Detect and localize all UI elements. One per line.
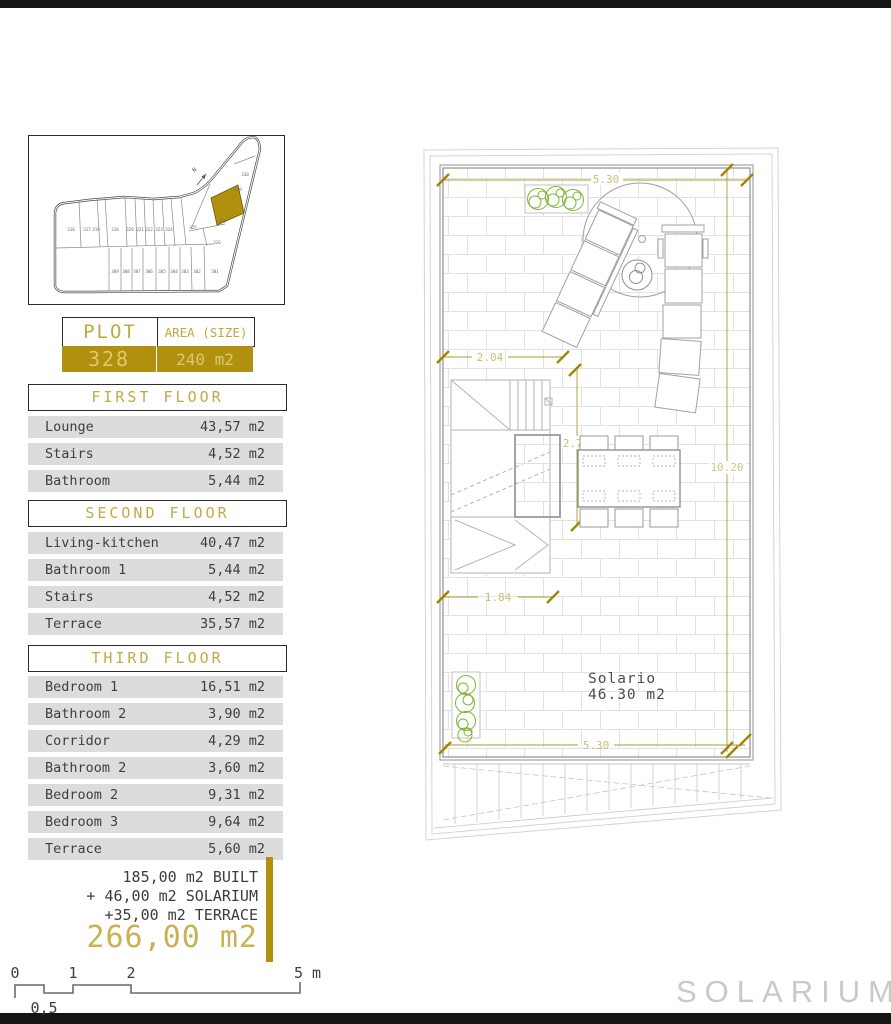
dim-184: 1.84 [485, 591, 512, 604]
table-row: Corridor4,29 m2 [28, 730, 283, 752]
svg-text:324: 324 [165, 227, 173, 232]
svg-text:1: 1 [68, 964, 77, 982]
table-row: Bedroom 39,64 m2 [28, 811, 283, 833]
svg-text:319: 319 [92, 227, 100, 232]
north-arrow-icon: N [191, 166, 206, 185]
svg-text:301: 301 [211, 269, 219, 274]
plot-header-label: PLOT [63, 318, 158, 346]
scale-bar-line [15, 982, 300, 998]
scale-bar: 0 1 2 5 m 0,5 [8, 960, 328, 1020]
table-row: Terrace5,60 m2 [28, 838, 283, 860]
planter-top [525, 185, 588, 213]
site-plan-box: N 316 317 319 318 320 321 322 323 324 32… [28, 135, 285, 305]
round-side-table [622, 260, 652, 290]
summary-built: 185,00 m2 BUILT [30, 868, 258, 887]
table-row: Stairs4,52 m2 [28, 586, 283, 608]
table-row: Bathroom5,44 m2 [28, 470, 283, 492]
svg-text:0: 0 [10, 964, 19, 982]
svg-text:5 m: 5 m [294, 964, 321, 982]
site-plan-svg: N 316 317 319 318 320 321 322 323 324 32… [29, 136, 284, 304]
svg-text:325: 325 [189, 225, 197, 230]
table-row: Bedroom 116,51 m2 [28, 676, 283, 698]
solarium-watermark: SOLARIUM [676, 974, 891, 1010]
third-floor-header: THIRD FLOOR [28, 645, 287, 672]
table-row: Lounge43,57 m2 [28, 416, 283, 438]
plot-table-header: PLOT AREA (SIZE) [62, 317, 255, 347]
room-area: 46.30 m2 [588, 687, 666, 703]
svg-text:318: 318 [111, 227, 119, 232]
svg-text:316: 316 [67, 227, 75, 232]
table-row: Bedroom 29,31 m2 [28, 784, 283, 806]
plot-numbers: 316 317 319 318 320 321 322 323 324 325 … [67, 172, 249, 274]
svg-text:320: 320 [126, 227, 134, 232]
table-row: Living-kitchen40,47 m2 [28, 532, 283, 554]
room-label: Solario 46.30 m2 [588, 671, 666, 703]
svg-text:317: 317 [83, 227, 91, 232]
svg-text:329: 329 [234, 187, 242, 192]
svg-text:305: 305 [158, 269, 166, 274]
table-row: Bathroom 15,44 m2 [28, 559, 283, 581]
plot-number: 328 [62, 346, 157, 372]
tiled-planter-block [515, 435, 560, 517]
svg-text:306: 306 [145, 269, 153, 274]
svg-text:304: 304 [170, 269, 178, 274]
table-row: Stairs4,52 m2 [28, 443, 283, 465]
planter-left [452, 672, 480, 742]
area-header-label: AREA (SIZE) [158, 318, 254, 346]
svg-text:303: 303 [181, 269, 189, 274]
summary-solarium: + 46,00 m2 SOLARIUM [30, 887, 258, 906]
plot-area: 240 m2 [157, 346, 253, 372]
dim-204: 2.04 [477, 351, 504, 364]
svg-text:330: 330 [241, 172, 249, 177]
svg-text:2: 2 [126, 964, 135, 982]
plot-table-values: 328 240 m2 [62, 346, 253, 372]
table-row: Bathroom 23,90 m2 [28, 703, 283, 725]
floor-plan: 5.30 2.04 2.78 1.84 10.20 5.30 [410, 140, 785, 860]
dim-top: 5.30 [593, 173, 620, 186]
svg-text:309: 309 [111, 269, 119, 274]
second-floor-header: SECOND FLOOR [28, 500, 287, 527]
gold-accent-bar [266, 857, 273, 962]
dining-set [578, 436, 680, 527]
dim-1020: 10.20 [710, 461, 743, 474]
first-floor-header: FIRST FLOOR [28, 384, 287, 411]
floor-plan-svg: 5.30 2.04 2.78 1.84 10.20 5.30 [410, 140, 785, 860]
svg-text:N: N [191, 166, 199, 174]
summary-total: 266,00 m2 [30, 920, 258, 955]
scale-labels: 0 1 2 5 m 0,5 [10, 964, 321, 1017]
svg-text:302: 302 [193, 269, 201, 274]
table-row: Terrace35,57 m2 [28, 613, 283, 635]
railing [434, 764, 773, 828]
dim-530: 5.30 [583, 739, 610, 752]
top-black-bar [0, 0, 891, 8]
area-summary: 185,00 m2 BUILT + 46,00 m2 SOLARIUM +35,… [30, 868, 258, 925]
table-row: Bathroom 23,60 m2 [28, 757, 283, 779]
svg-text:327: 327 [218, 219, 226, 224]
svg-text:326: 326 [213, 240, 221, 245]
svg-text:0,5: 0,5 [30, 999, 57, 1017]
svg-text:322: 322 [145, 227, 153, 232]
svg-text:321: 321 [136, 227, 144, 232]
svg-text:323: 323 [155, 227, 163, 232]
svg-text:308: 308 [122, 269, 130, 274]
svg-text:307: 307 [133, 269, 141, 274]
room-name: Solario [588, 671, 656, 687]
page: { "colors": { "gold": "#b2900f", "gold_h… [0, 0, 891, 1024]
dining-table [578, 450, 680, 507]
